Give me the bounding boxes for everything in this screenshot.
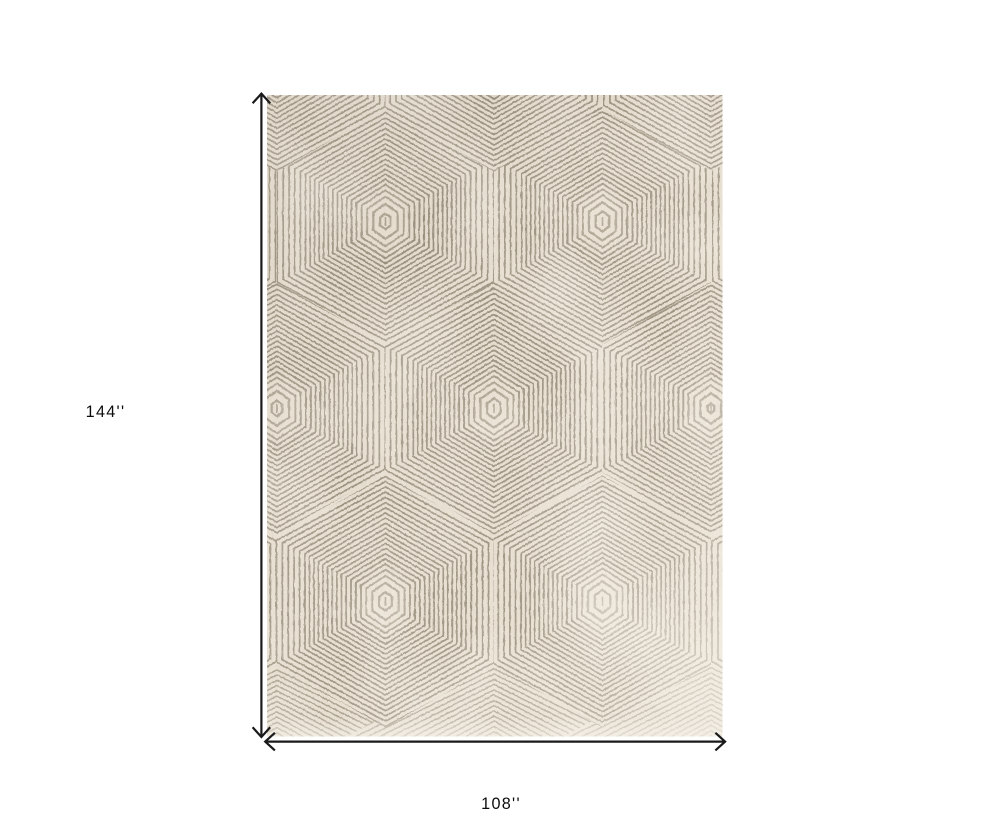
svg-text:108'': 108'' [481, 795, 521, 813]
svg-text:144'': 144'' [86, 403, 126, 421]
